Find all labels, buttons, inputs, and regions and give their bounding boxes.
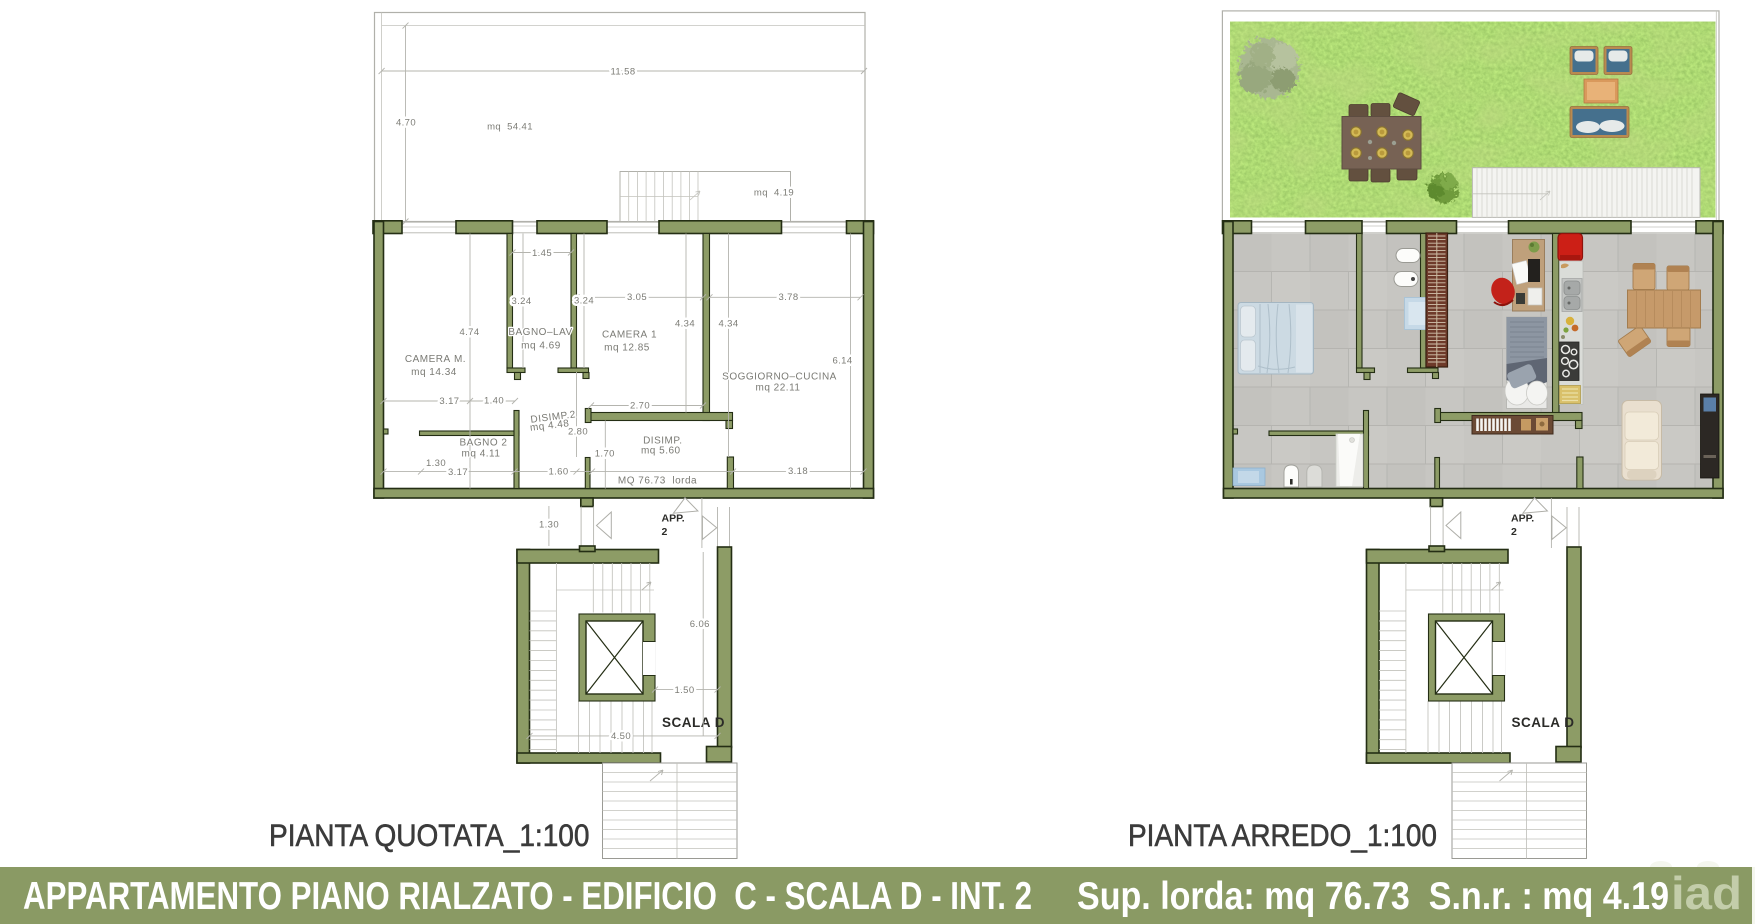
- svg-text:mq 12.85: mq 12.85: [604, 343, 650, 354]
- svg-text:PIANTA QUOTATA_1:100: PIANTA QUOTATA_1:100: [269, 817, 590, 853]
- svg-text:APP.: APP.: [662, 513, 685, 525]
- svg-text:2.70: 2.70: [630, 400, 650, 411]
- svg-text:3.17: 3.17: [439, 396, 459, 407]
- svg-text:CAMERA 1: CAMERA 1: [602, 330, 657, 341]
- svg-text:BAGNO 2: BAGNO 2: [460, 438, 508, 449]
- svg-text:1.50: 1.50: [674, 685, 694, 696]
- svg-text:3.78: 3.78: [778, 292, 798, 303]
- svg-text:4.50: 4.50: [611, 731, 631, 742]
- svg-text:1.40: 1.40: [484, 396, 504, 407]
- svg-text:3.17: 3.17: [448, 467, 468, 478]
- svg-text:3.24: 3.24: [574, 296, 594, 307]
- svg-text:MQ 76.73 lorda: MQ 76.73 lorda: [618, 476, 697, 487]
- svg-text:mq 4.19: mq 4.19: [754, 188, 794, 199]
- svg-text:1.70: 1.70: [595, 449, 615, 460]
- svg-text:PIANTA ARREDO_1:100: PIANTA ARREDO_1:100: [1128, 817, 1437, 853]
- svg-text:mq 4.69: mq 4.69: [521, 341, 561, 352]
- svg-text:Sup. lorda: mq 76.73 S.n.r. :: Sup. lorda: mq 76.73 S.n.r. : mq 4.19: [1077, 875, 1669, 918]
- svg-text:1.45: 1.45: [532, 248, 552, 259]
- svg-text:6.14: 6.14: [832, 356, 852, 367]
- svg-text:mq 4.11: mq 4.11: [462, 449, 501, 460]
- svg-text:1.30: 1.30: [426, 458, 446, 469]
- svg-text:4.70: 4.70: [396, 118, 416, 129]
- svg-text:CAMERA M.: CAMERA M.: [405, 354, 466, 365]
- svg-text:1.60: 1.60: [548, 467, 568, 478]
- svg-text:SCALA D: SCALA D: [662, 715, 725, 730]
- svg-text:6.06: 6.06: [690, 619, 710, 630]
- svg-text:SOGGIORNO–CUCINA: SOGGIORNO–CUCINA: [722, 372, 837, 383]
- svg-text:mq 22.11: mq 22.11: [756, 383, 801, 394]
- svg-text:mq 5.60: mq 5.60: [641, 446, 681, 457]
- svg-text:4.74: 4.74: [459, 327, 479, 338]
- svg-text:mq 14.34: mq 14.34: [411, 367, 457, 378]
- svg-text:APPARTAMENTO PIANO RIALZATO -: APPARTAMENTO PIANO RIALZATO - EDIFICIO C…: [23, 875, 1032, 918]
- svg-text:4.34: 4.34: [718, 319, 738, 330]
- svg-text:3.24: 3.24: [511, 296, 531, 307]
- svg-text:BAGNO–LAV: BAGNO–LAV: [508, 327, 572, 338]
- svg-text:2: 2: [662, 526, 668, 538]
- svg-text:11.58: 11.58: [610, 67, 635, 78]
- svg-text:iad: iad: [1671, 867, 1742, 919]
- svg-text:2.80: 2.80: [568, 427, 588, 438]
- svg-text:4.34: 4.34: [675, 319, 695, 330]
- svg-text:1.30: 1.30: [539, 520, 559, 531]
- svg-text:3.18: 3.18: [788, 466, 808, 477]
- svg-text:mq 54.41: mq 54.41: [487, 122, 533, 133]
- svg-text:3.05: 3.05: [627, 292, 647, 303]
